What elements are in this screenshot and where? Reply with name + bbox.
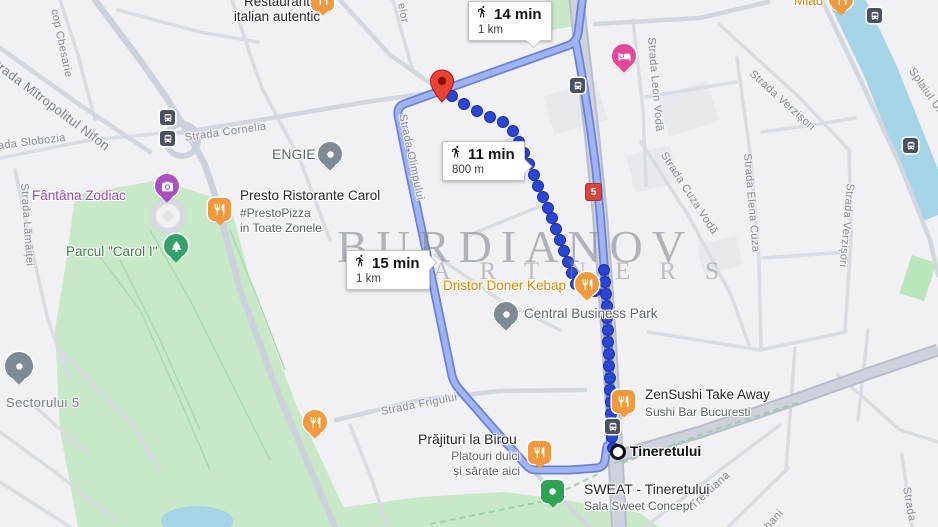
route-time: 14 min	[494, 6, 542, 23]
poi-label-zensushi-sub: Sushi Bar Bucuresti	[645, 405, 750, 419]
bus-icon	[906, 141, 916, 151]
restaurant-icon-dristor[interactable]	[575, 272, 599, 296]
walking-icon	[354, 254, 367, 272]
bed-icon	[618, 50, 631, 63]
fork-knife-icon	[581, 278, 594, 291]
restaurant-icon-presto[interactable]	[208, 198, 231, 221]
poi-label-tineretului-station[interactable]: Tineretului	[630, 443, 701, 459]
bus-icon	[163, 113, 173, 123]
tram-stop-icon[interactable]	[605, 419, 620, 434]
restaurant-icon-prajituri[interactable]	[528, 441, 551, 464]
poi-label-prajituri-sub1: Platouri dulci	[430, 449, 520, 463]
dot-icon	[500, 308, 513, 321]
poi-label-parcul-carol[interactable]: Parcul "Carol I"	[66, 244, 157, 259]
bus-stop-icon[interactable]	[160, 131, 175, 146]
walking-icon	[476, 5, 489, 23]
route-option-14min[interactable]: 14 min 1 km	[468, 1, 552, 41]
map-viewport[interactable]: BURDIANOV PARTNERS cop Chesarie Strada M…	[0, 0, 938, 527]
destination-pin[interactable]	[429, 69, 455, 108]
poi-label-presto-sub2: in Toate Zonele	[240, 221, 322, 235]
walking-icon	[450, 145, 463, 163]
fork-knife-icon	[835, 0, 848, 6]
fork-knife-icon	[213, 203, 226, 216]
poi-label-sweat[interactable]: SWEAT - Tineretului	[584, 481, 710, 497]
fork-knife-icon	[617, 395, 630, 408]
bus-stop-icon[interactable]	[867, 8, 882, 23]
bus-stop-icon[interactable]	[903, 138, 918, 153]
bus-icon	[870, 11, 880, 21]
map-canvas[interactable]	[0, 0, 938, 527]
route-time: 15 min	[372, 255, 420, 272]
bus-icon	[573, 81, 583, 91]
poi-label-dristor[interactable]: Dristor Doner Kebap	[443, 278, 566, 293]
bus-stop-icon[interactable]	[570, 78, 585, 93]
poi-label-presto[interactable]: Presto Ristorante Carol	[240, 188, 380, 203]
route-option-11min-selected[interactable]: 11 min 800 m	[442, 141, 525, 181]
route-time: 11 min	[468, 146, 515, 163]
poi-label-engie[interactable]: ENGIE	[272, 146, 316, 162]
poi-label-prajituri-sub2: și sărate aici	[430, 464, 520, 478]
bus-icon	[163, 134, 173, 144]
fork-knife-icon	[309, 416, 322, 429]
metro-station-icon-tineretului[interactable]	[610, 444, 626, 460]
restaurant-icon-park-edge[interactable]	[303, 410, 327, 434]
dot-icon	[13, 360, 26, 373]
poi-label-sweat-sub: Sala Sweet Concept	[584, 499, 693, 513]
dot-icon	[546, 485, 559, 498]
bus-icon	[608, 422, 618, 432]
route-option-15min[interactable]: 15 min 1 km	[346, 250, 430, 290]
route-distance: 800 m	[452, 164, 515, 176]
poi-icon-engie[interactable]	[318, 142, 342, 166]
poi-label-presto-sub1: #PrestoPizza	[240, 206, 311, 220]
restaurant-icon-zensushi[interactable]	[612, 390, 635, 413]
fork-knife-icon	[316, 0, 329, 6]
poi-label-central-business-park[interactable]: Central Business Park	[524, 306, 658, 321]
poi-icon-central-business-park[interactable]	[494, 302, 518, 326]
fork-knife-icon	[533, 446, 546, 459]
poi-label-prajituri[interactable]: Prăjituri la Birou	[418, 431, 517, 447]
poi-label-miau[interactable]: Miau	[794, 0, 823, 8]
street-label-sectorului-5: Sectorului 5	[6, 395, 79, 410]
poi-label-zensushi[interactable]: ZenSushi Take Away	[645, 387, 770, 402]
gym-icon-sweat[interactable]	[541, 480, 564, 503]
dot-icon	[324, 148, 337, 161]
map-pin-icon	[429, 69, 455, 103]
attraction-icon-fantana[interactable]	[155, 174, 179, 198]
hotel-icon[interactable]	[612, 44, 636, 68]
poi-icon-sectorului[interactable]	[5, 352, 33, 380]
tree-icon	[170, 240, 183, 253]
route-shield-5: 5	[585, 183, 602, 201]
restaurant-icon-top[interactable]	[311, 0, 334, 11]
poi-label-restaurant-italian-line2: italian autentic	[222, 9, 332, 24]
route-distance: 1 km	[356, 273, 420, 285]
park-icon-carol[interactable]	[164, 234, 188, 258]
bus-stop-icon[interactable]	[160, 110, 175, 125]
camera-icon	[161, 180, 174, 193]
poi-label-fantana-zodiac[interactable]: Fântâna Zodiac	[32, 188, 126, 203]
